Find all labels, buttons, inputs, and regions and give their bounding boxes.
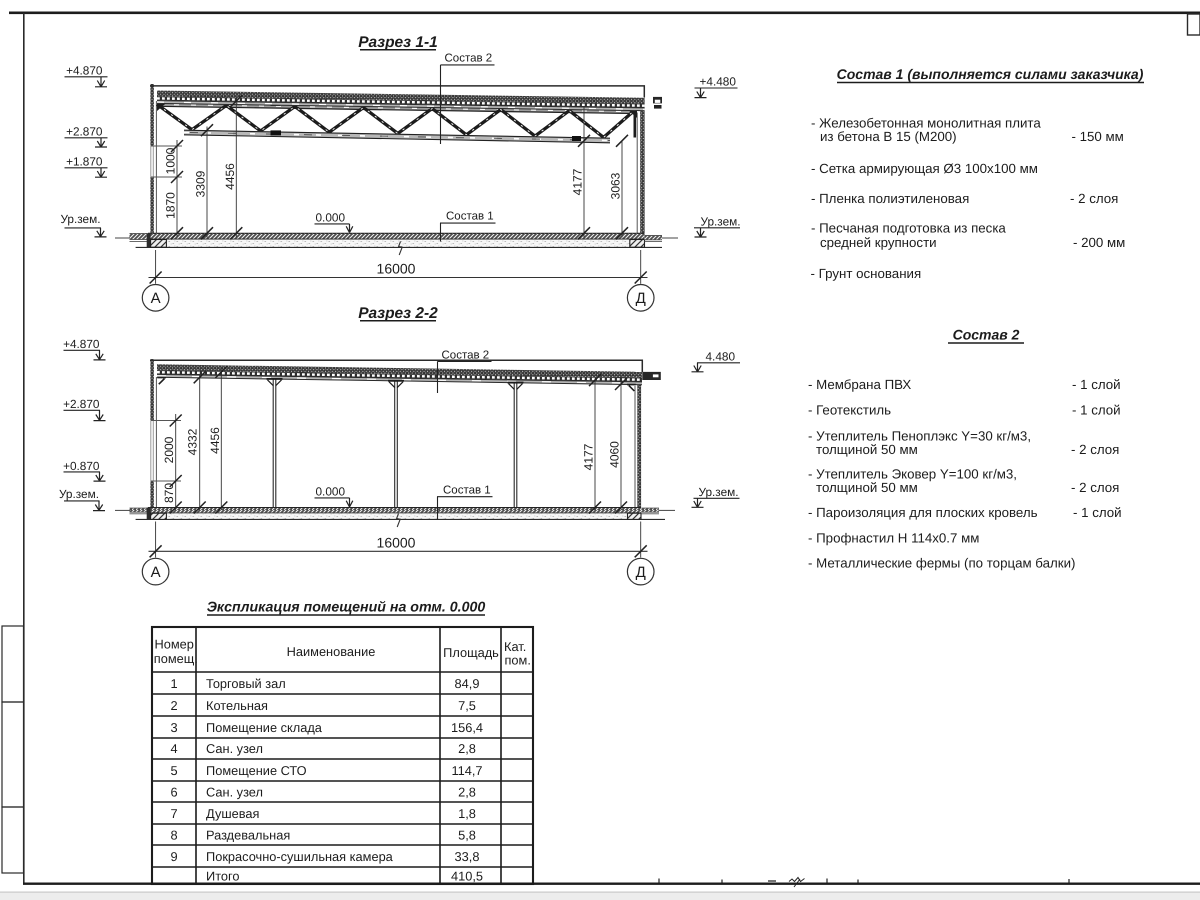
svg-text:Итого: Итого — [206, 868, 240, 883]
svg-text:- Сетка армирующая Ø3 100х100: - Сетка армирующая Ø3 100х100 мм — [811, 161, 1038, 176]
svg-text:2,8: 2,8 — [458, 784, 476, 799]
svg-text:пом.: пом. — [505, 653, 531, 668]
svg-text:1000: 1000 — [164, 147, 178, 174]
svg-text:Ур.зем.: Ур.зем. — [701, 215, 741, 229]
svg-text:- 2 слоя: - 2 слоя — [1071, 442, 1119, 457]
svg-text:- Металлические фермы (по торц: - Металлические фермы (по торцам балки) — [808, 556, 1075, 571]
svg-text:Состав 2: Состав 2 — [442, 350, 490, 362]
svg-text:- 150 мм: - 150 мм — [1072, 129, 1124, 144]
svg-text:4.480: 4.480 — [706, 350, 736, 364]
svg-text:3063: 3063 — [609, 172, 623, 199]
svg-text:- 1 слой: - 1 слой — [1072, 403, 1121, 418]
svg-text:Д: Д — [636, 564, 646, 581]
svg-text:5,8: 5,8 — [458, 827, 476, 842]
svg-text:из бетона В 15 (М200): из бетона В 15 (М200) — [820, 129, 957, 144]
svg-text:3309: 3309 — [194, 170, 208, 197]
svg-text:7,5: 7,5 — [458, 698, 476, 713]
svg-text:16000: 16000 — [377, 261, 416, 277]
svg-text:156,4: 156,4 — [451, 720, 483, 735]
svg-text:4: 4 — [170, 741, 177, 756]
svg-text:А: А — [151, 564, 161, 581]
svg-text:Помещение СТО: Помещение СТО — [206, 763, 307, 778]
svg-text:114,7: 114,7 — [451, 763, 482, 778]
svg-text:2000: 2000 — [162, 436, 176, 463]
svg-text:Помещение склада: Помещение склада — [206, 720, 323, 735]
svg-text:Состав 2: Состав 2 — [445, 53, 493, 65]
svg-text:Сан. узел: Сан. узел — [206, 741, 263, 756]
svg-text:7: 7 — [170, 806, 177, 821]
svg-text:16000: 16000 — [377, 534, 416, 550]
svg-text:+0.870: +0.870 — [63, 459, 100, 473]
svg-text:Ур.зем.: Ур.зем. — [59, 487, 99, 501]
svg-text:толщиной 50 мм: толщиной 50 мм — [816, 442, 918, 457]
svg-text:А: А — [151, 290, 161, 307]
svg-text:- 200 мм: - 200 мм — [1073, 235, 1125, 250]
svg-text:3: 3 — [170, 720, 177, 735]
svg-text:- Пароизоляция для плоских кро: - Пароизоляция для плоских кровель — [808, 505, 1038, 520]
svg-text:4456: 4456 — [208, 427, 222, 454]
svg-text:2,8: 2,8 — [458, 741, 476, 756]
svg-text:1870: 1870 — [164, 192, 178, 219]
svg-text:+4.870: +4.870 — [66, 64, 103, 78]
svg-text:Номер: Номер — [155, 637, 194, 652]
svg-text:870: 870 — [162, 483, 176, 503]
svg-text:4456: 4456 — [223, 163, 237, 190]
svg-text:4060: 4060 — [608, 441, 622, 468]
svg-text:4332: 4332 — [186, 428, 200, 455]
svg-text:4177: 4177 — [582, 443, 596, 470]
svg-text:6: 6 — [170, 784, 177, 799]
svg-text:9: 9 — [170, 849, 177, 864]
svg-text:4177: 4177 — [571, 168, 585, 195]
svg-text:средней крупности: средней крупности — [820, 235, 937, 250]
svg-text:+1.870: +1.870 — [66, 155, 103, 169]
svg-text:Торговый зал: Торговый зал — [206, 676, 286, 691]
svg-text:Сан. узел: Сан. узел — [206, 784, 263, 799]
svg-text:2: 2 — [170, 698, 177, 713]
svg-text:Состав 1: Состав 1 — [446, 211, 494, 223]
svg-text:- Мембрана ПВХ: - Мембрана ПВХ — [808, 377, 911, 392]
svg-text:помещ.: помещ. — [154, 651, 198, 666]
svg-text:Душевая: Душевая — [206, 806, 260, 821]
svg-text:410,5: 410,5 — [451, 868, 483, 883]
svg-text:- Геотекстиль: - Геотекстиль — [808, 403, 891, 418]
svg-text:8: 8 — [170, 827, 177, 842]
svg-text:5: 5 — [170, 763, 177, 778]
svg-text:+4.870: +4.870 — [63, 337, 100, 351]
svg-text:Состав 2: Состав 2 — [953, 327, 1020, 343]
svg-text:Состав 1: Состав 1 — [443, 485, 491, 497]
svg-text:1: 1 — [170, 676, 177, 691]
svg-text:0.000: 0.000 — [316, 485, 346, 499]
svg-text:Разрез 1-1: Разрез 1-1 — [358, 34, 438, 51]
svg-text:33,8: 33,8 — [455, 849, 480, 864]
svg-text:Ур.зем.: Ур.зем. — [60, 212, 100, 226]
svg-text:- Профнастил Н 114х0.7 мм: - Профнастил Н 114х0.7 мм — [808, 531, 979, 546]
svg-text:Наименование: Наименование — [287, 644, 376, 659]
svg-text:толщиной 50 мм: толщиной 50 мм — [816, 480, 918, 495]
svg-text:- Пленка полиэтиленовая: - Пленка полиэтиленовая — [811, 191, 969, 206]
svg-text:+4.480: +4.480 — [700, 75, 737, 89]
svg-text:- 1 слой: - 1 слой — [1073, 505, 1122, 520]
svg-text:- 2 слоя: - 2 слоя — [1071, 480, 1119, 495]
svg-text:Состав 1 (выполняется силами з: Состав 1 (выполняется силами заказчика) — [837, 66, 1144, 82]
svg-text:Разрез 2-2: Разрез 2-2 — [358, 305, 438, 322]
svg-text:Экспликация помещений на отм.: Экспликация помещений на отм. 0.000 — [207, 600, 486, 616]
svg-text:Раздевальная: Раздевальная — [206, 827, 290, 842]
svg-text:+2.870: +2.870 — [66, 125, 103, 139]
svg-text:- 1 слой: - 1 слой — [1072, 377, 1121, 392]
svg-text:- Грунт основания: - Грунт основания — [811, 266, 922, 281]
svg-text:1,8: 1,8 — [458, 806, 476, 821]
svg-text:Ур.зем.: Ур.зем. — [699, 485, 739, 499]
svg-text:84,9: 84,9 — [455, 676, 480, 691]
svg-text:Котельная: Котельная — [206, 698, 268, 713]
svg-text:- Песчаная подготовка из песка: - Песчаная подготовка из песка — [811, 221, 1006, 236]
svg-text:Площадь: Площадь — [443, 645, 499, 660]
svg-text:0.000: 0.000 — [316, 211, 346, 225]
svg-text:Покрасочно-сушильная камера: Покрасочно-сушильная камера — [206, 849, 394, 864]
svg-text:+2.870: +2.870 — [63, 397, 100, 411]
svg-text:Д: Д — [636, 290, 646, 307]
svg-text:- 2 слоя: - 2 слоя — [1070, 191, 1118, 206]
